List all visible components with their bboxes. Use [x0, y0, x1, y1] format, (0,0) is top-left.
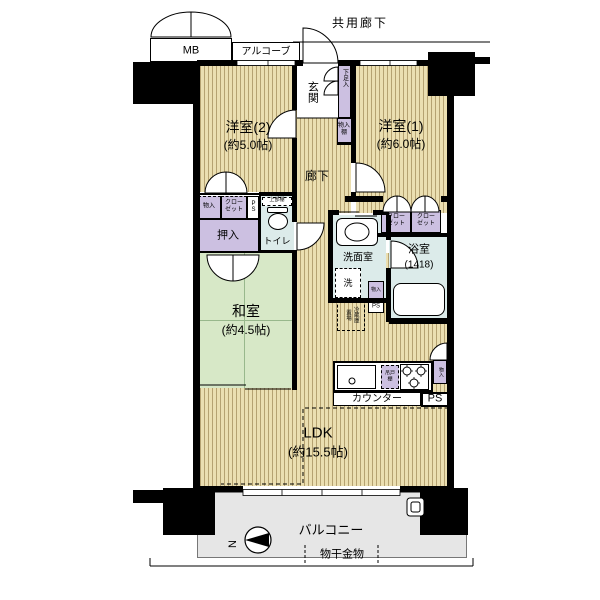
- bedroom2-closet-door-icon-a: [205, 172, 226, 193]
- shoe-cabinet-label: 下足入: [341, 69, 348, 87]
- bedroom1-door-icon: [356, 163, 385, 192]
- entrance-label: 玄関: [306, 81, 319, 103]
- kitchen-storage-label: 物入: [437, 367, 443, 377]
- washroom-slide-door-icon: [337, 212, 377, 216]
- ldk-size-label: (約15.5帖): [288, 446, 348, 461]
- shared-corridor-label: 共用廊下: [332, 17, 388, 31]
- mb-door-right-icon: [191, 12, 231, 37]
- counter-label: カウンター: [352, 393, 402, 405]
- balcony-slab-line: [150, 558, 473, 566]
- hanging-cabinet-label: 吊戸棚: [383, 371, 397, 383]
- kitchen-storage-door-icon: [430, 343, 447, 360]
- bedroom1-closet-door-icon-b: [397, 196, 411, 212]
- entrance-storage-label: 物入 棚: [338, 123, 350, 137]
- washroom-storage-label: 物入: [371, 288, 381, 294]
- bedroom2-door-icon: [268, 110, 296, 138]
- ps-label-1: PS: [250, 201, 257, 213]
- compass-icon: N: [227, 527, 271, 553]
- oshiire-door-icon-b: [233, 255, 259, 281]
- entrance-door-icon: [303, 28, 338, 63]
- bedroom1-closet-door-icon-a: [383, 196, 397, 212]
- balcony-label: バルコニー: [299, 524, 364, 539]
- ldk-name-label: LDK: [303, 424, 332, 441]
- closet-label-3: クロー ゼット: [417, 214, 435, 228]
- toilet-door-icon: [297, 223, 324, 250]
- bedroom2-closet-door-icon-b: [226, 172, 247, 193]
- japanese-room-slide-door-icon: [200, 385, 291, 389]
- alcove-label: アルコーブ: [241, 46, 290, 58]
- closet-label-1: クロー ゼット: [225, 200, 243, 214]
- bedroom2-size-label: (約5.0帖): [224, 139, 273, 153]
- floor-plan: N 共用廊下 MB アルコーブ 玄関 下足入 物入 棚 洋室(2) (約5.0帖…: [0, 0, 600, 600]
- mb-label: MB: [183, 45, 200, 58]
- shoe-door-icon-b: [324, 81, 338, 95]
- mb-door-left-icon: [151, 12, 191, 37]
- ps-label-2: PS: [372, 304, 380, 311]
- closet-label-2: クロー ゼット: [387, 214, 405, 228]
- hallway-label: 廊下: [305, 170, 329, 184]
- japanese-room-size-label: (約4.5帖): [222, 324, 271, 338]
- bedroom1-size-label: (約6.0帖): [377, 138, 426, 152]
- stove-burner-icon-a: [403, 367, 411, 375]
- bedroom2-name-label: 洋室(2): [225, 119, 270, 135]
- japanese-room-name-label: 和室: [232, 303, 260, 319]
- stove-burner-icon-c: [410, 379, 418, 387]
- fridge-space-label: 冷蔵庫 置場: [343, 307, 358, 324]
- toilet-shelf-label: 上部棚: [269, 198, 284, 204]
- shoe-door-icon-a: [324, 67, 338, 81]
- bathroom-size-label: (1418): [405, 259, 434, 271]
- oshiire-label: 押入: [217, 230, 239, 243]
- stove-burner-icon-b: [417, 367, 425, 375]
- window-top-right: [360, 61, 417, 66]
- washer-label: 洗: [343, 278, 352, 288]
- kitchen-ps-label: PS: [428, 393, 443, 406]
- bedroom1-closet-door-icon-d: [425, 196, 439, 212]
- laundry-hardware-label: 物干金物: [320, 549, 364, 562]
- window-top-left: [237, 61, 295, 66]
- bathroom-label: 浴室: [408, 244, 430, 257]
- basin-bowl-icon: [345, 223, 369, 241]
- bedroom1-name-label: 洋室(1): [378, 118, 423, 134]
- kitchen-sink-drain-icon: [349, 378, 355, 384]
- washroom-label: 洗面室: [343, 252, 373, 264]
- window-balcony: [243, 490, 400, 496]
- oshiire-door-icon-a: [207, 255, 233, 281]
- small-storage-label: 物入: [203, 204, 215, 211]
- symbols-overlay: N: [0, 0, 600, 600]
- bedroom1-closet-door-icon-c: [411, 196, 425, 212]
- compass-n-label: N: [227, 540, 239, 548]
- toilet-label: トイレ: [263, 236, 290, 246]
